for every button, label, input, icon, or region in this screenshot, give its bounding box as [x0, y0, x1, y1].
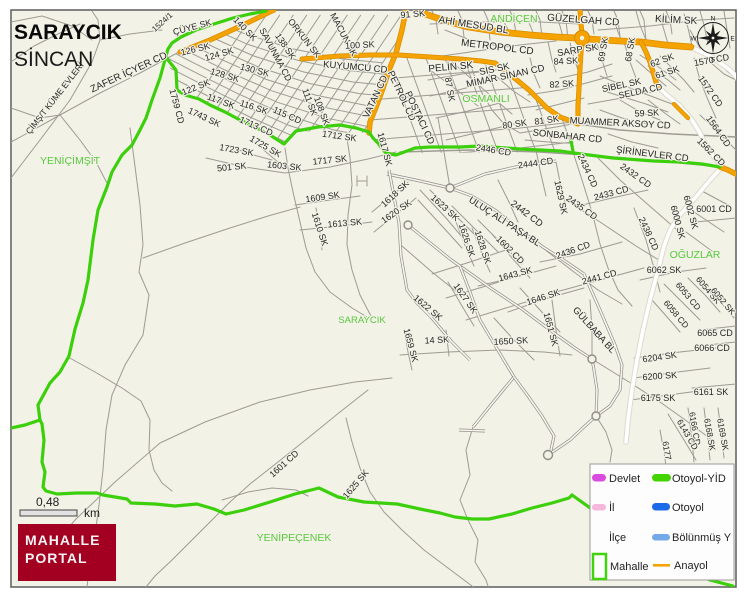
svg-text:6175 SK: 6175 SK: [641, 393, 676, 403]
svg-text:Anayol: Anayol: [674, 560, 708, 572]
svg-text:6062 SK: 6062 SK: [647, 265, 682, 275]
svg-text:Mahalle: Mahalle: [610, 561, 649, 573]
svg-text:6065 CD: 6065 CD: [697, 328, 733, 338]
svg-text:6066 CD: 6066 CD: [694, 343, 730, 353]
svg-text:Otoyol-YİD: Otoyol-YİD: [672, 472, 726, 485]
svg-text:6001 CD: 6001 CD: [696, 204, 732, 214]
svg-text:1650 SK: 1650 SK: [493, 335, 528, 347]
svg-text:100 SK: 100 SK: [345, 39, 375, 51]
svg-text:6161 SK: 6161 SK: [694, 387, 729, 397]
svg-text:İlçe: İlçe: [609, 531, 626, 544]
svg-text:SARAYCIK: SARAYCIK: [338, 315, 386, 326]
svg-text:E: E: [730, 36, 735, 43]
svg-text:km: km: [84, 506, 100, 520]
svg-text:Devlet: Devlet: [609, 473, 640, 485]
svg-text:Bölünmüş Y: Bölünmüş Y: [672, 532, 732, 544]
svg-text:0,48: 0,48: [36, 495, 60, 509]
svg-text:14 SK: 14 SK: [424, 334, 449, 345]
svg-text:W: W: [690, 36, 697, 43]
svg-text:84 SK: 84 SK: [553, 55, 578, 66]
svg-text:YENİÇİMŞİT: YENİÇİMŞİT: [40, 154, 101, 167]
svg-text:59 SK: 59 SK: [634, 107, 659, 118]
svg-text:SİNCAN: SİNCAN: [14, 48, 93, 71]
svg-text:PORTAL: PORTAL: [25, 550, 88, 566]
svg-text:OSMANLI: OSMANLI: [462, 93, 509, 105]
svg-text:MAHALLE: MAHALLE: [25, 532, 100, 548]
svg-text:İl: İl: [609, 501, 615, 514]
svg-text:N: N: [711, 16, 716, 23]
svg-text:SARAYCIK: SARAYCIK: [14, 21, 122, 44]
svg-text:ANDİÇEN: ANDİÇEN: [490, 12, 537, 25]
svg-text:Otoyol: Otoyol: [672, 502, 704, 514]
svg-text:82 SK: 82 SK: [549, 78, 574, 90]
svg-text:YENİPEÇENEK: YENİPEÇENEK: [257, 531, 332, 544]
svg-text:S: S: [711, 57, 716, 64]
svg-text:OĞUZLAR: OĞUZLAR: [670, 248, 721, 261]
